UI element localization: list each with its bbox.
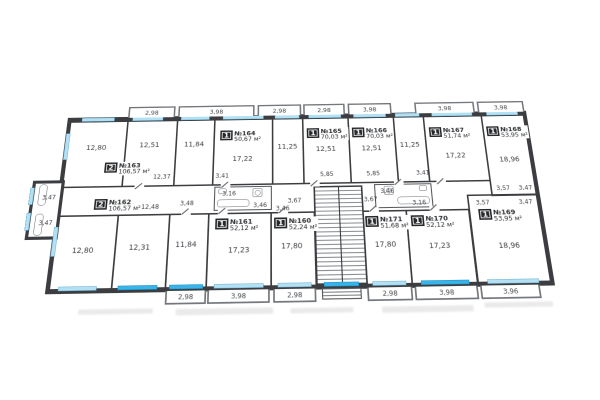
- rooms-count-badge: 1: [486, 126, 500, 136]
- apartment-label-162[interactable]: 2 №162106,57 м²: [92, 198, 142, 213]
- apartment-area: 53,95 м²: [501, 132, 529, 138]
- rooms-count-badge: 2: [104, 162, 118, 172]
- balcony-width-label: 2,98: [317, 107, 331, 114]
- room-area-value: 11,84: [184, 141, 204, 149]
- room-area-value: 12,51: [361, 144, 382, 152]
- apartment-label-167[interactable]: 1 №16751,74 м²: [428, 126, 472, 140]
- balcony: 2,98: [367, 287, 413, 301]
- rooms-count-badge: 1: [429, 127, 442, 137]
- room-area-value: 11,25: [277, 143, 297, 151]
- balcony-width-label: 2,98: [145, 109, 159, 116]
- apartment-label-163[interactable]: 2 №163106,57 м²: [103, 161, 152, 175]
- door: [310, 182, 320, 187]
- balcony: 3,98: [348, 103, 392, 114]
- dim-label: 3,47: [518, 184, 533, 191]
- balcony: 2,98: [165, 290, 207, 304]
- apartment-area: 70,03 м²: [366, 133, 393, 139]
- apartment-label-168[interactable]: 1 №16853,95 м²: [485, 125, 530, 139]
- dim-label: 3,47: [518, 198, 533, 205]
- ghost-reflection: [484, 301, 553, 307]
- balcony-width-label: 2,98: [287, 291, 302, 299]
- door: [369, 207, 379, 212]
- rooms-count-badge: 1: [220, 130, 233, 140]
- balcony-glazing: [324, 282, 359, 287]
- room-area-value: 11,25: [399, 141, 420, 149]
- balcony: 3,96: [480, 285, 542, 300]
- room-area-value: 17,80: [281, 242, 302, 251]
- apartment-area: 106,57 м²: [118, 168, 150, 175]
- apartment-label-165[interactable]: 1 №16570,03 м²: [306, 127, 349, 141]
- room-cell: [164, 213, 209, 289]
- balcony: 3,98: [207, 289, 270, 304]
- rooms-count-badge: 1: [478, 209, 492, 220]
- dim-label: 3,41: [215, 172, 229, 179]
- balcony-width-label: 3,98: [493, 104, 507, 110]
- balcony-width-label: 3,98: [231, 292, 246, 300]
- balcony-width-label: 3,96: [503, 287, 519, 295]
- door: [394, 181, 404, 186]
- room-cell: [272, 118, 305, 185]
- apartment-label-169[interactable]: 1 №16953,95 м²: [477, 208, 524, 223]
- dim-label: 3,67: [364, 196, 378, 203]
- room-area-value: 12,80: [71, 246, 93, 255]
- balcony: 2,98: [258, 104, 302, 115]
- room-area-value: 17,23: [429, 241, 451, 250]
- rooms-count-badge: 1: [215, 218, 228, 229]
- room-area-value: 17,22: [445, 152, 466, 160]
- dim-label: 3,16: [222, 190, 236, 197]
- floor-plan: 2,98 3,98 2,98 2,98 3,98 3,98 3,98 2,98 …: [34, 99, 568, 338]
- apartment-label-166[interactable]: 1 №16670,03 м²: [351, 127, 395, 141]
- balcony-width-label: 3,98: [210, 108, 224, 115]
- dim-label: 3,48: [180, 200, 194, 207]
- apartment-area: 52,12 м²: [426, 221, 455, 228]
- door: [436, 180, 446, 185]
- door: [181, 210, 191, 215]
- dim-label: 3,57: [475, 199, 490, 206]
- window: [278, 282, 312, 287]
- floor-plan-stage: 2,98 3,98 2,98 2,98 3,98 3,98 3,98 2,98 …: [0, 0, 600, 400]
- dim-label: 3,67: [288, 197, 302, 204]
- room-area-value: 12,51: [316, 145, 336, 153]
- dim-label: 3,41: [416, 169, 430, 176]
- balcony-width-label: 2,98: [273, 107, 287, 114]
- room-area-value: 18,96: [499, 156, 520, 164]
- dim-label: 5,85: [320, 171, 334, 178]
- door: [429, 206, 439, 211]
- balcony-width-label: 2,98: [382, 289, 398, 297]
- dim-label: 3,47: [38, 219, 53, 226]
- window: [214, 283, 264, 288]
- apartment-area: 52,12 м²: [230, 225, 259, 232]
- balcony-width-label: 3,98: [437, 105, 451, 111]
- door: [221, 183, 231, 188]
- dim-label: 3,16: [412, 199, 426, 206]
- balcony-glazing: [117, 285, 157, 290]
- rooms-count-badge: 1: [352, 127, 365, 137]
- room-cell: [173, 119, 216, 186]
- ghost-reflection: [382, 305, 474, 313]
- window: [58, 286, 97, 291]
- balcony: 3,98: [414, 102, 475, 114]
- room-area-value: 17,80: [375, 240, 397, 249]
- ghost-reflection: [290, 307, 353, 313]
- apartment-area: 106,57 м²: [108, 205, 141, 212]
- room-area-value: 12,31: [128, 243, 150, 252]
- door: [134, 185, 144, 190]
- apartment-label-170[interactable]: 1 №17052,12 м²: [410, 214, 457, 229]
- ghost-reflection: [175, 307, 273, 315]
- balcony: 3,98: [178, 105, 255, 117]
- ghost-reflection: [78, 308, 153, 314]
- door: [218, 210, 228, 215]
- balcony: 2,98: [128, 106, 176, 118]
- dim-label: 12,37: [153, 173, 171, 180]
- apartment-area: 70,03 м²: [321, 134, 348, 140]
- dim-label: 3,46: [276, 205, 290, 212]
- room-area-value: 11,84: [175, 240, 197, 249]
- apartment-area: 50,67 м²: [234, 136, 261, 142]
- balcony-width-label: 2,98: [178, 293, 194, 301]
- rooms-count-badge: 1: [411, 215, 425, 226]
- apartment-label-160[interactable]: 1 №16052,24 м²: [273, 216, 318, 231]
- dim-label: 3,47: [42, 194, 57, 201]
- sink-icon: [419, 185, 427, 191]
- room-area-value: 18,96: [498, 241, 521, 250]
- apartment-label-171[interactable]: 1 №17151,68 м²: [364, 215, 410, 230]
- window: [487, 278, 539, 283]
- dim-label: 3,46: [380, 187, 394, 194]
- washer-icon: [253, 188, 263, 197]
- balcony-glazing: [169, 284, 203, 289]
- dim-label: 12,48: [141, 203, 159, 210]
- room-area-value: 17,23: [228, 246, 250, 255]
- dim-label: 3,46: [253, 201, 267, 208]
- entrance-steps: [322, 288, 362, 300]
- window: [372, 281, 406, 286]
- balcony: 3,98: [477, 101, 525, 112]
- apartment-area: 51,74 м²: [443, 133, 470, 139]
- room-cell: [467, 193, 554, 283]
- apartment-area: 52,24 м²: [289, 224, 318, 231]
- rooms-count-badge: 2: [94, 199, 108, 210]
- balcony-glazing: [421, 280, 470, 285]
- balcony-width-label: 3,98: [439, 288, 455, 296]
- room-area-value: 17,22: [232, 155, 252, 163]
- stairwell: [313, 185, 368, 285]
- apartment-label-161[interactable]: 1 №16152,12 м²: [214, 217, 260, 232]
- rooms-count-badge: 1: [274, 217, 287, 228]
- window: [82, 118, 115, 122]
- dim-label: 3,57: [496, 184, 511, 191]
- room-area-value: 12,51: [139, 141, 160, 149]
- balcony: 2,98: [273, 288, 316, 302]
- balcony-width-label: 3,98: [363, 106, 377, 113]
- room-area-value: 12,80: [86, 144, 107, 152]
- room-cell: [61, 121, 129, 189]
- dim-label: 5,85: [366, 170, 380, 177]
- bathtub-icon: [217, 199, 249, 207]
- rooms-count-badge: 1: [307, 128, 320, 138]
- apartment-label-164[interactable]: 1 №16450,67 м²: [219, 129, 262, 143]
- window: [395, 113, 420, 117]
- rooms-count-badge: 1: [365, 216, 379, 227]
- balcony: 2,98: [303, 104, 345, 115]
- apartment-area: 51,68 м²: [380, 222, 409, 229]
- apartment-area: 53,95 м²: [494, 215, 523, 222]
- room-cell: [422, 115, 491, 182]
- balcony: 3,98: [415, 286, 480, 301]
